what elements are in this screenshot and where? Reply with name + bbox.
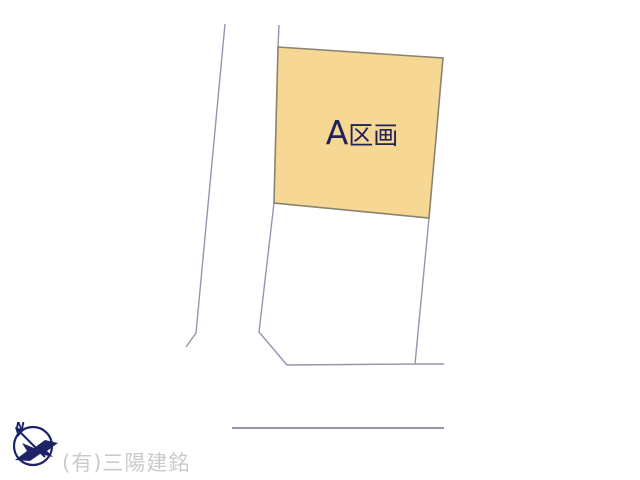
parcel-a-label-suffix: 区画 [348,121,398,150]
compass-north-label: N [15,420,24,433]
road-left-boundary-line [186,24,225,347]
company-watermark: (有)三陽建銘 [62,451,190,475]
plot-map-svg: A区画 N (有)三陽建銘 [0,0,640,480]
parcel-a-label-main: A [326,113,349,152]
upper-boundary-line [278,25,279,47]
compass-icon: N [14,420,58,465]
parcel-b-polygon [259,203,429,365]
plot-map-canvas: A区画 N (有)三陽建銘 [0,0,640,480]
